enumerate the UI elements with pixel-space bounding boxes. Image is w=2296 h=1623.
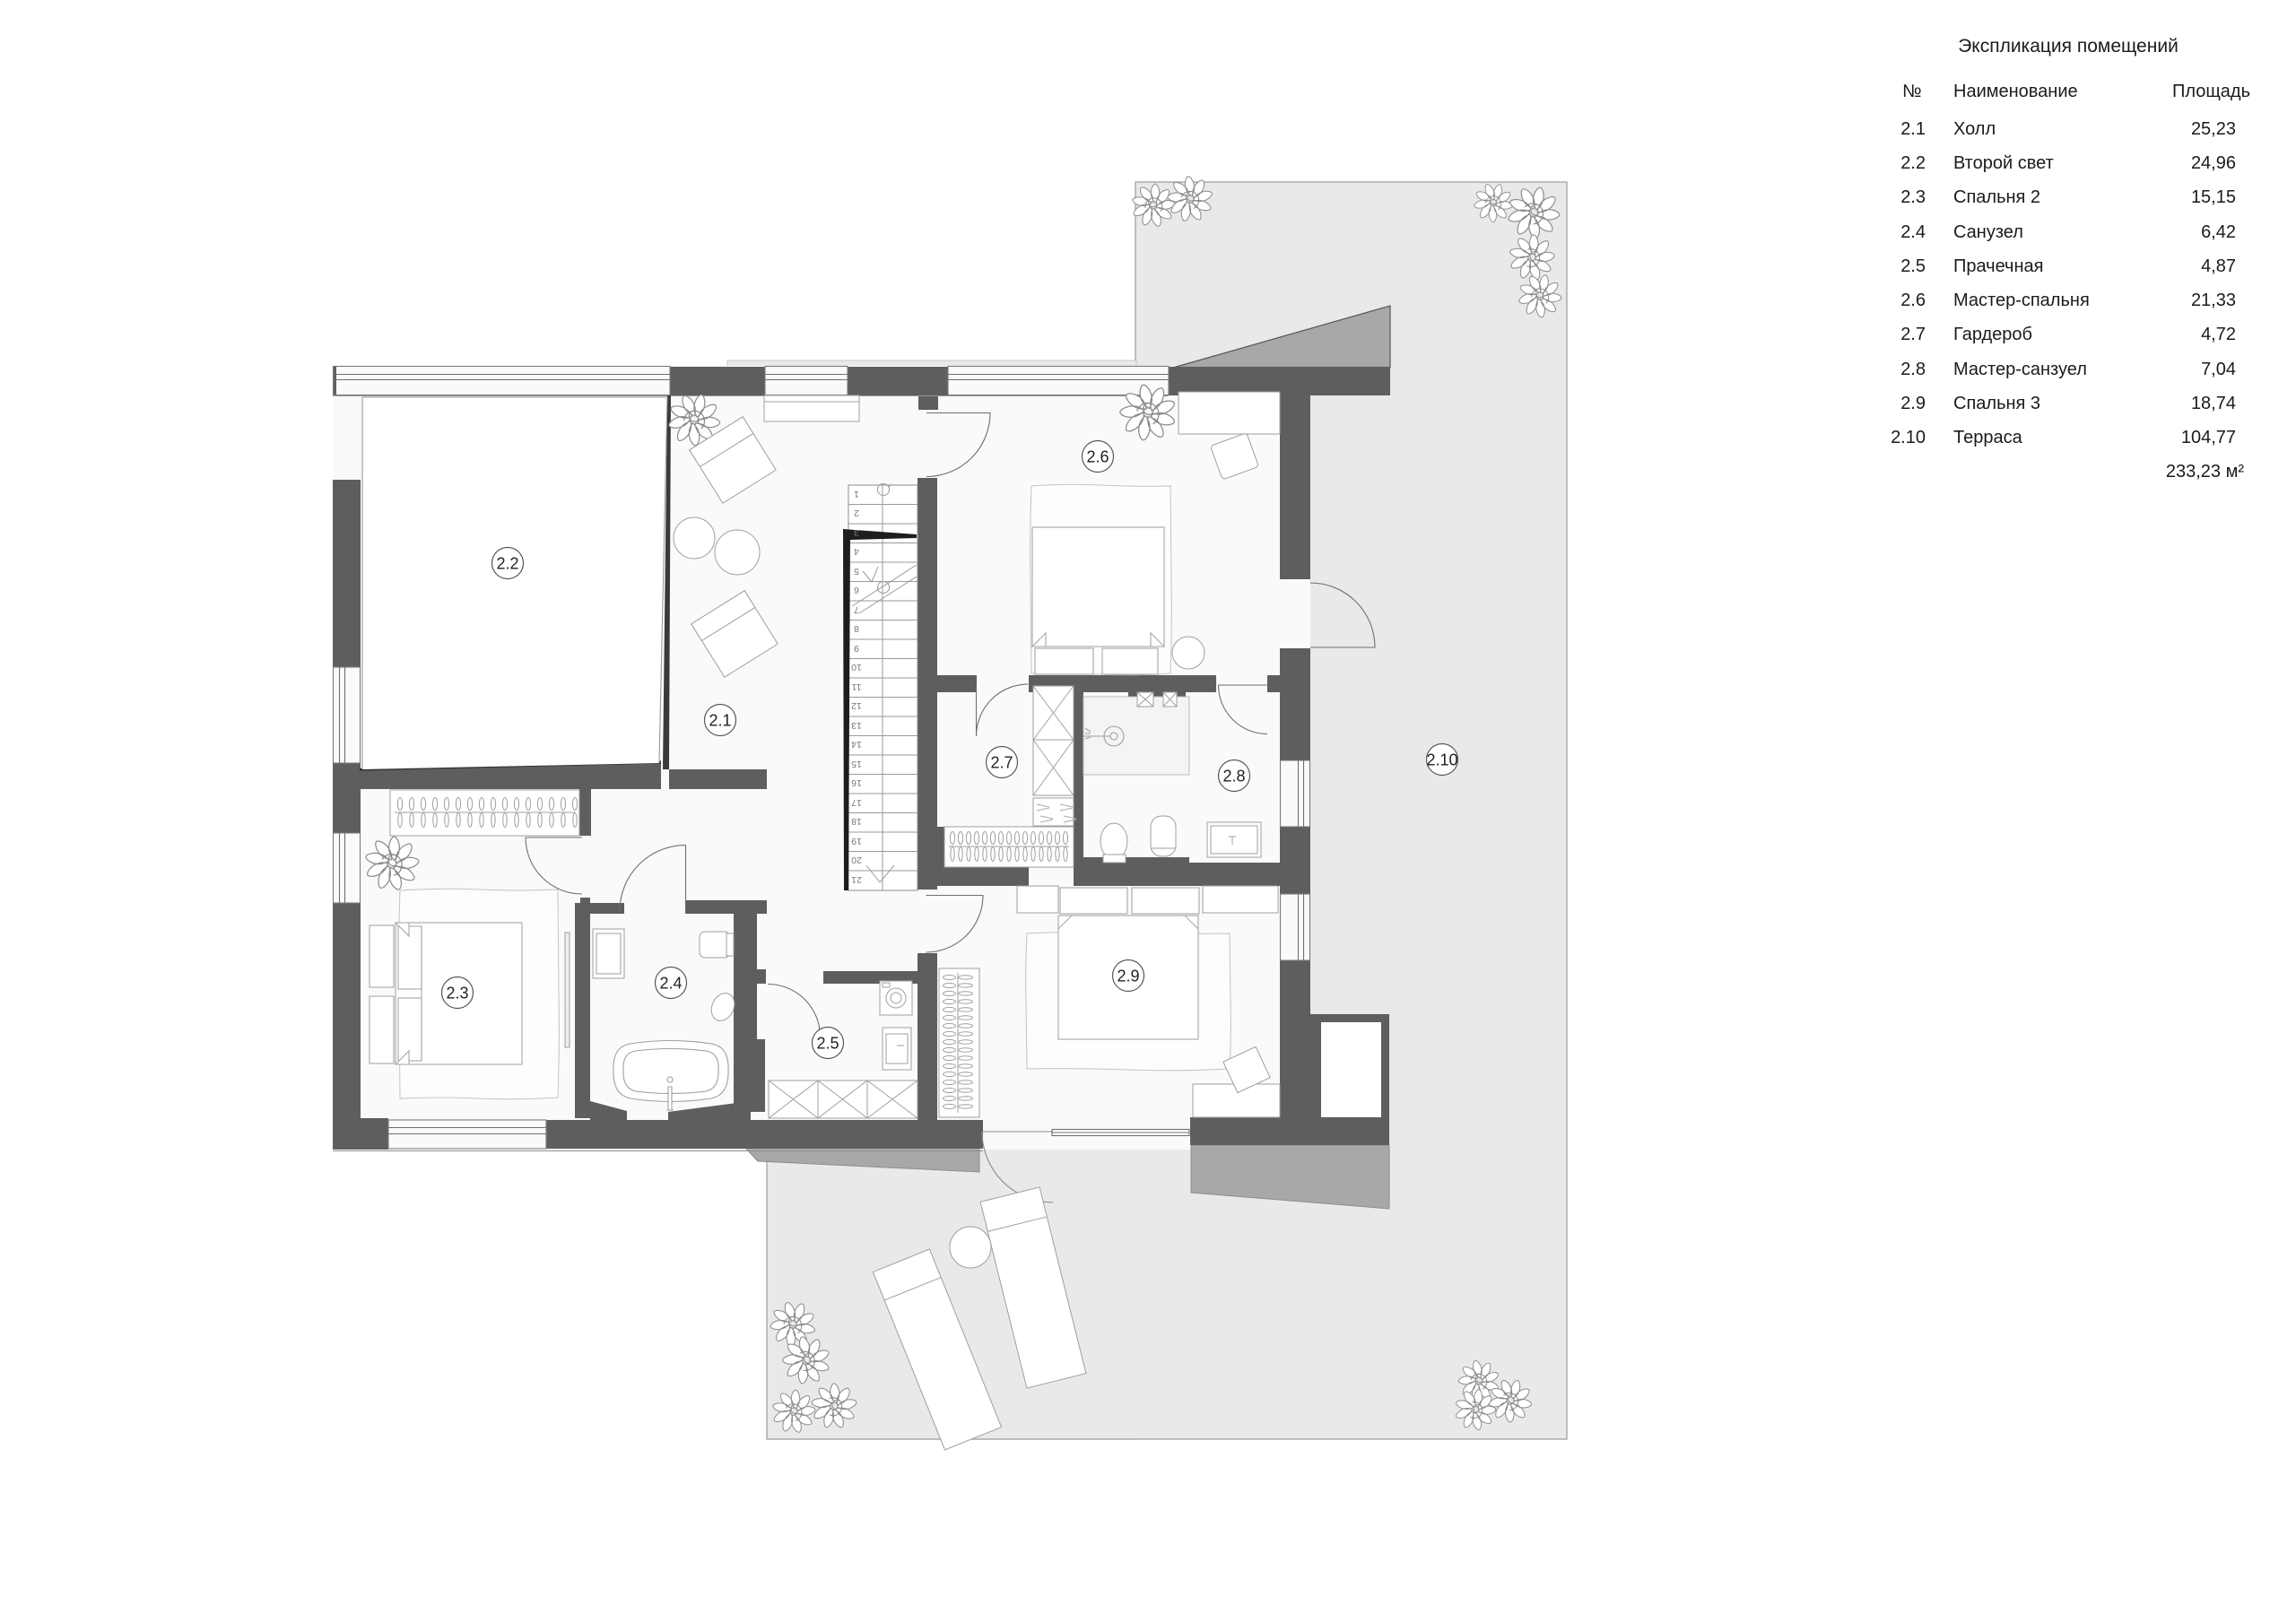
svg-text:2.9: 2.9 <box>1117 968 1139 985</box>
svg-text:2.4: 2.4 <box>1900 222 1926 242</box>
svg-text:2.4: 2.4 <box>659 975 682 993</box>
svg-text:Холл: Холл <box>1953 119 1996 139</box>
svg-text:21: 21 <box>851 874 862 885</box>
svg-text:2.3: 2.3 <box>1900 187 1926 207</box>
svg-text:2.1: 2.1 <box>1900 119 1926 139</box>
svg-text:19: 19 <box>851 836 862 846</box>
svg-text:5: 5 <box>854 566 859 577</box>
svg-text:15: 15 <box>851 759 862 769</box>
svg-text:24,96: 24,96 <box>2191 153 2236 173</box>
svg-text:Санузел: Санузел <box>1953 222 2023 242</box>
svg-text:104,77: 104,77 <box>2181 428 2236 447</box>
svg-text:15,15: 15,15 <box>2191 187 2236 207</box>
svg-text:16: 16 <box>851 777 862 788</box>
svg-text:4: 4 <box>854 546 859 557</box>
svg-text:№: № <box>1902 82 1921 101</box>
svg-text:12: 12 <box>851 700 862 711</box>
svg-text:2.6: 2.6 <box>1086 448 1109 466</box>
svg-text:18: 18 <box>851 816 862 827</box>
svg-text:3: 3 <box>854 527 859 538</box>
svg-text:Второй свет: Второй свет <box>1953 153 2054 173</box>
svg-text:20: 20 <box>851 855 862 865</box>
svg-text:2.2: 2.2 <box>496 555 518 573</box>
svg-text:2.10: 2.10 <box>1426 751 1457 769</box>
svg-text:4,87: 4,87 <box>2201 256 2236 276</box>
svg-text:2.7: 2.7 <box>990 754 1013 772</box>
svg-text:9: 9 <box>854 643 859 654</box>
svg-text:2.7: 2.7 <box>1900 325 1926 344</box>
svg-text:6,42: 6,42 <box>2201 222 2236 242</box>
svg-text:2.6: 2.6 <box>1900 291 1926 310</box>
svg-text:2.8: 2.8 <box>1900 360 1926 379</box>
svg-text:7,04: 7,04 <box>2201 360 2236 379</box>
svg-text:2: 2 <box>854 508 859 518</box>
svg-text:18,74: 18,74 <box>2191 394 2236 413</box>
svg-text:Экспликация помещений: Экспликация помещений <box>1958 36 2179 56</box>
svg-text:2.5: 2.5 <box>1900 256 1926 276</box>
svg-text:11: 11 <box>851 681 861 692</box>
svg-text:Прачечная: Прачечная <box>1953 256 2043 276</box>
svg-text:21,33: 21,33 <box>2191 291 2236 310</box>
svg-text:Мастер-санзуел: Мастер-санзуел <box>1953 360 2087 379</box>
svg-text:Гардероб: Гардероб <box>1953 325 2032 344</box>
svg-text:7: 7 <box>854 604 859 615</box>
svg-text:2.10: 2.10 <box>1891 428 1926 447</box>
svg-text:17: 17 <box>851 797 862 808</box>
svg-text:Мастер-спальня: Мастер-спальня <box>1953 291 2090 310</box>
svg-text:Наименование: Наименование <box>1953 82 2078 101</box>
svg-text:10: 10 <box>851 662 862 673</box>
svg-text:13: 13 <box>851 720 862 731</box>
svg-text:6: 6 <box>854 585 859 595</box>
svg-text:2.5: 2.5 <box>816 1035 839 1053</box>
svg-text:2.2: 2.2 <box>1900 153 1926 173</box>
svg-text:Спальня 3: Спальня 3 <box>1953 394 2040 413</box>
svg-text:Терраса: Терраса <box>1953 428 2023 447</box>
svg-text:8: 8 <box>854 623 859 634</box>
svg-text:25,23: 25,23 <box>2191 119 2236 139</box>
svg-text:2.8: 2.8 <box>1222 768 1245 785</box>
svg-text:1: 1 <box>854 489 859 499</box>
svg-text:14: 14 <box>851 739 862 750</box>
svg-text:4,72: 4,72 <box>2201 325 2236 344</box>
svg-text:233,23 м²: 233,23 м² <box>2166 462 2244 482</box>
svg-text:Спальня 2: Спальня 2 <box>1953 187 2040 207</box>
svg-text:2.3: 2.3 <box>446 985 468 1002</box>
svg-text:2.9: 2.9 <box>1900 394 1926 413</box>
svg-text:Площадь: Площадь <box>2172 82 2250 101</box>
svg-text:2.1: 2.1 <box>709 712 731 730</box>
